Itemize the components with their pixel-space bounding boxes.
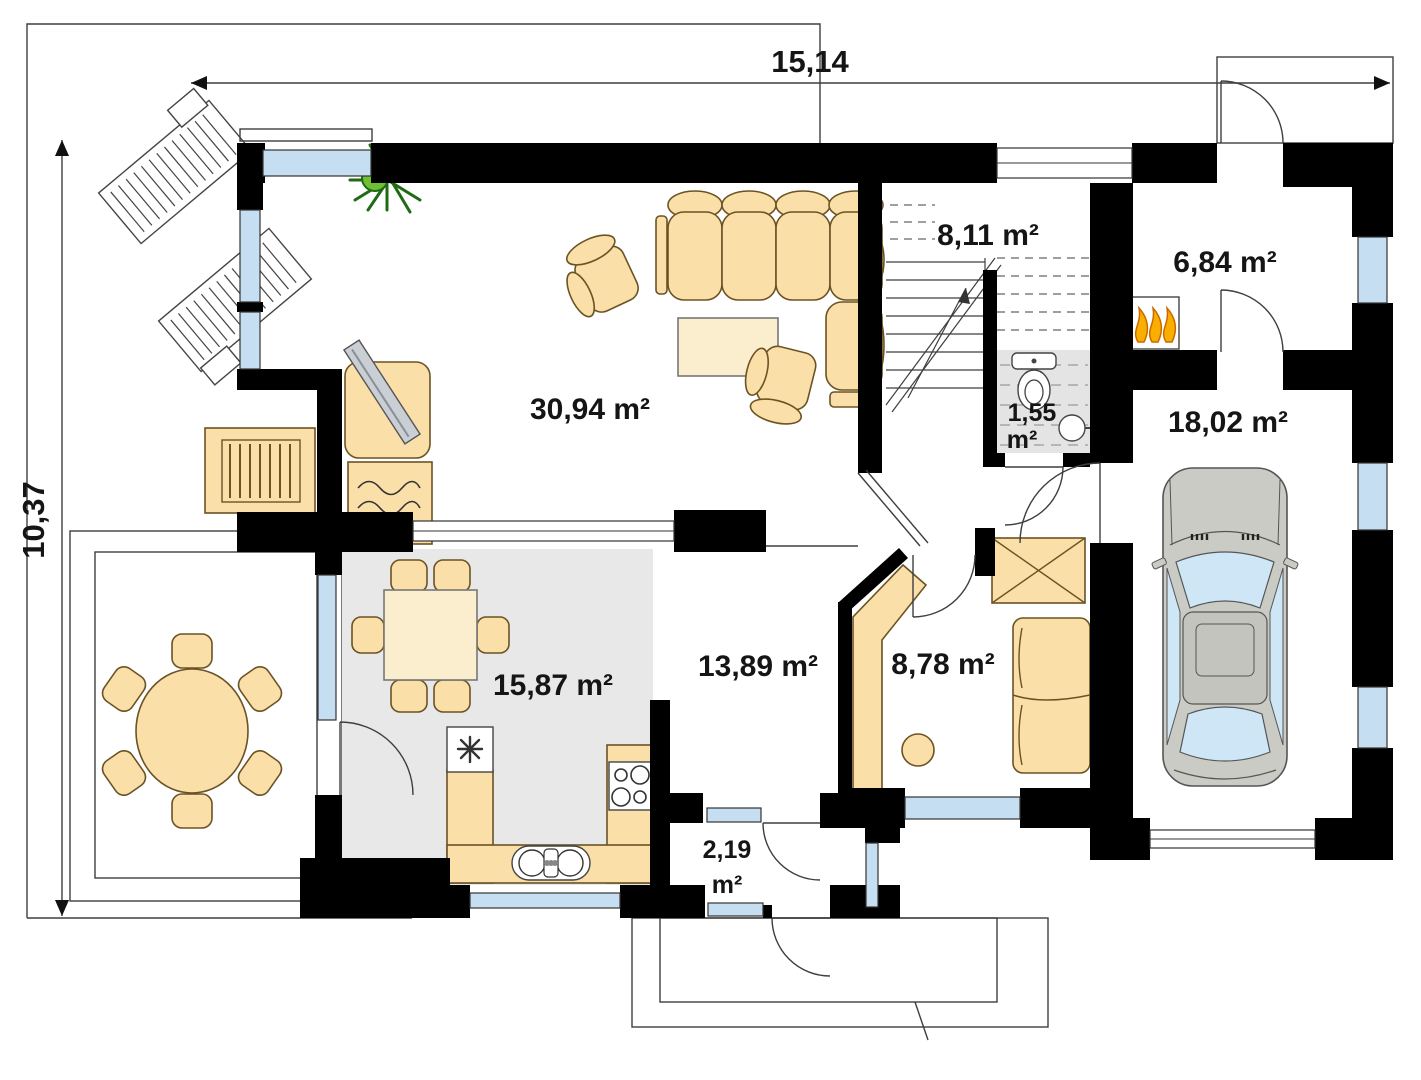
steps-tick [915, 1002, 928, 1040]
window-icon [240, 210, 260, 302]
office-sofa-icon [1013, 618, 1090, 773]
window-icon [1358, 687, 1387, 748]
entry-steps-inner [660, 918, 997, 1002]
stool-icon [902, 734, 934, 766]
entry-canopy [1217, 57, 1393, 143]
window-icon [1358, 237, 1387, 303]
window-sill [240, 129, 372, 141]
sun-lounger-icon [86, 86, 251, 244]
floor-plan: 15,14 10,37 [0, 0, 1421, 1080]
hall-vestibule-door [763, 823, 820, 880]
hall-garage-door [1020, 463, 1100, 543]
floor-plan-drawing: 15,14 10,37 [0, 0, 1421, 1080]
dimension-depth-label: 10,37 [16, 481, 51, 559]
dimension-width-label: 15,14 [771, 44, 849, 79]
garage-door [1150, 830, 1315, 848]
armchair-icon [552, 228, 643, 322]
car-icon [1151, 468, 1298, 786]
front-door [772, 918, 830, 976]
window-icon [707, 808, 761, 822]
window-icon [866, 843, 878, 907]
wc-area-unit: m² [1007, 426, 1038, 454]
kitchen-sink-icon [512, 846, 590, 880]
hall-area-label: 13,89 m² [698, 650, 818, 683]
entry-door-boiler [1221, 81, 1283, 143]
window-icon [905, 797, 1020, 819]
vestibule-area-value: 2,19 [703, 836, 752, 864]
window-icon [240, 312, 260, 369]
window-icon [1358, 463, 1387, 530]
living-room-area-label: 30,94 m² [530, 393, 650, 426]
wardrobe-icon [992, 538, 1085, 603]
window-icon [263, 150, 371, 176]
open-edge [866, 470, 928, 543]
furnace-icon [1127, 297, 1179, 349]
fridge-snowflake-icon [458, 737, 482, 762]
garage-area-label: 18,02 m² [1168, 406, 1288, 439]
open-edge [858, 473, 920, 546]
kitchen-area-label: 15,87 m² [493, 669, 613, 702]
garden-bench-icon [205, 428, 315, 513]
office-area-label: 8,78 m² [891, 648, 994, 681]
boiler-room-area-label: 6,84 m² [1173, 246, 1276, 279]
tv-cabinet-icon [344, 340, 430, 458]
vestibule-area-unit: m² [712, 871, 743, 899]
stair-hall-area-label: 8,11 m² [937, 219, 1039, 252]
window-icon [470, 893, 620, 908]
round-dining-table [99, 634, 286, 828]
window-icon [708, 903, 763, 916]
entry-steps-outer [632, 918, 1048, 1027]
wc-door [1005, 467, 1063, 525]
stove-icon [609, 762, 651, 810]
wc-area-value: 1,55 [1008, 399, 1057, 427]
door-boiler-garage [1221, 290, 1283, 352]
window-icon [318, 575, 336, 720]
